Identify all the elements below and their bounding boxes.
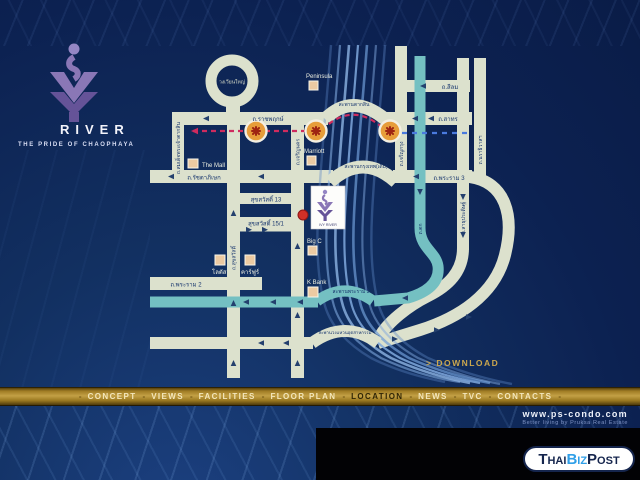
- label-sathorn: ถ.สาทร: [438, 116, 458, 123]
- landmark-carrefour: คาร์ฟูร์: [241, 255, 260, 276]
- svg-text:คาร์ฟูร์: คาร์ฟูร์: [241, 268, 260, 276]
- marriott-marker: [307, 156, 316, 165]
- label-rama3: ถ.พระราม 3: [433, 175, 465, 182]
- kbank-marker: [308, 287, 318, 297]
- project-marker[interactable]: IVY RIVER: [298, 186, 345, 229]
- label-tok: ถ.ตก: [418, 223, 424, 234]
- landmark-the-mall: The Mall: [188, 159, 225, 169]
- nav-item-concept[interactable]: CONCEPT: [88, 392, 137, 401]
- svg-text:Peninsula: Peninsula: [306, 74, 333, 80]
- the-mall-marker: [188, 159, 198, 168]
- landmarks: Peninsula Marriott The Mall โลตัส คาร์ฟู…: [188, 74, 333, 297]
- svg-text:The Mall: The Mall: [202, 163, 225, 169]
- landmark-bigc: Big C: [307, 239, 322, 255]
- nav-item-facilities[interactable]: FACILITIES: [199, 392, 256, 401]
- road-rama2: [150, 277, 262, 290]
- nav-item-news[interactable]: NEWS: [418, 392, 448, 401]
- site-tagline: Better living by Pruksa Real Estate: [522, 420, 628, 426]
- lotus-marker: [215, 255, 225, 265]
- svg-text:K Bank: K Bank: [307, 280, 327, 286]
- peninsula-marker: [309, 81, 318, 90]
- label-charoen-nakhon: ถ.เจริญนคร: [295, 139, 302, 166]
- label-rama3-bridge: สะพานพระราม 3: [333, 289, 370, 295]
- road-suksawat: [227, 99, 240, 378]
- label-suksawat: ถ.สุขสวัสดิ์: [230, 245, 238, 270]
- label-taksin-bridge: สะพานตากสิน: [339, 101, 370, 108]
- bts-station-krungthonburi: [306, 121, 327, 142]
- nav-separator: -: [79, 392, 82, 401]
- label-rama2: ถ.พระราม 2: [170, 282, 202, 289]
- nav-item-floor-plan[interactable]: FLOOR PLAN: [270, 392, 336, 401]
- label-roundabout: วงเวียนใหญ่: [219, 79, 245, 86]
- site-url[interactable]: www.ps-condo.com: [523, 409, 628, 419]
- project-location-dot: [298, 210, 308, 220]
- project-marker-label: IVY RIVER: [319, 223, 337, 227]
- label-ratchadaphisek: ถ.รัชดาภิเษก: [187, 175, 221, 182]
- main-nav[interactable]: -CONCEPT-VIEWS-FACILITIES-FLOOR PLAN-LOC…: [0, 387, 640, 406]
- label-narathiwat: ถ.นราธิวาสฯ: [477, 135, 484, 164]
- nav-separator: -: [489, 392, 492, 401]
- bts-arrow: [191, 128, 198, 134]
- nav-separator: -: [190, 392, 193, 401]
- thaibizpost-watermark[interactable]: ThaiBizPost: [523, 446, 635, 472]
- landmark-lotus: โลตัส: [212, 255, 227, 276]
- roundabout-stem: [226, 100, 239, 114]
- nav-separator: -: [262, 392, 265, 401]
- label-charoen-krung: ถ.เจริญกรุง: [398, 141, 405, 167]
- watermark-part1: Thai: [538, 452, 566, 467]
- nav-separator: -: [342, 392, 345, 401]
- label-taksin-road: ถ.สมเด็จพระเจ้าตากสิน: [174, 121, 182, 174]
- nav-separator: -: [558, 392, 561, 401]
- nav-item-location[interactable]: LOCATION: [351, 392, 403, 401]
- label-silom: ถ.สีลม: [442, 83, 459, 91]
- nav-separator: -: [454, 392, 457, 401]
- download-link[interactable]: > DOWNLOAD: [426, 358, 499, 368]
- nav-separator: -: [410, 392, 413, 401]
- bts-station-saphantaksin: [380, 121, 401, 142]
- label-ratchaphruek: ถ.ราชพฤกษ์: [252, 115, 283, 123]
- nav-item-views[interactable]: VIEWS: [151, 392, 184, 401]
- watermark-part3: Post: [587, 452, 620, 467]
- bts-station-wongwianyai: [246, 121, 267, 142]
- location-map[interactable]: ถ.ราชพฤกษ์ ถ.สาทร ถ.สีลม ถ.รัชดาภิเษก ถ.…: [0, 0, 640, 480]
- label-krungthep-bridge: สะพานกรุงเทพ(เดิม): [344, 163, 388, 170]
- watermark-part2: Biz: [566, 452, 587, 467]
- svg-text:Marriott: Marriott: [304, 149, 325, 155]
- label-sathupradit: ถ.สาธุประดิษฐ์: [460, 202, 467, 234]
- bigc-marker: [308, 246, 317, 255]
- page: RIVER THE PRIDE OF CHAOPHAYA: [0, 0, 640, 480]
- nav-item-tvc[interactable]: TVC: [462, 392, 482, 401]
- svg-text:Big C: Big C: [307, 239, 322, 245]
- nav-item-contacts[interactable]: CONTACTS: [497, 392, 552, 401]
- nav-separator: -: [143, 392, 146, 401]
- svg-text:โลตัส: โลตัส: [212, 268, 227, 276]
- carrefour-marker: [245, 255, 255, 265]
